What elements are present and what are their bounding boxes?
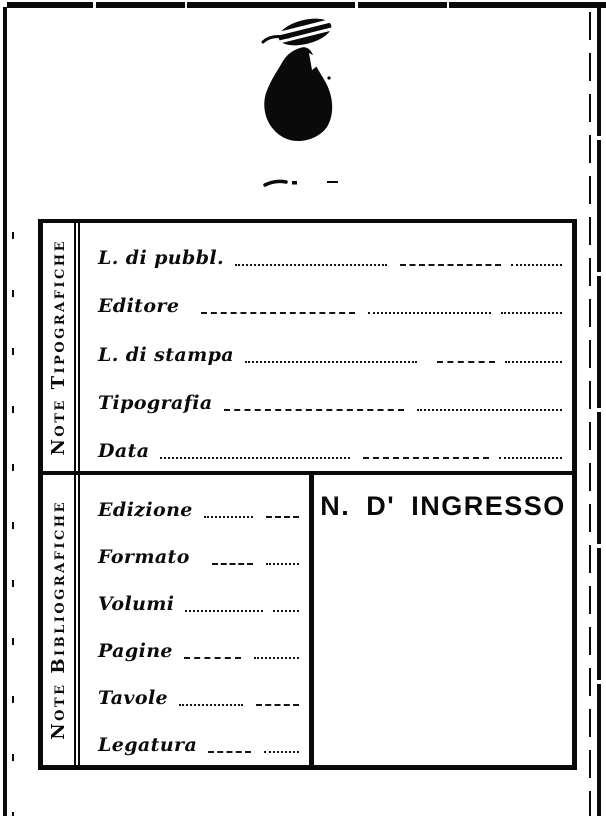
field-row-l-di-pubbl: L. di pubbl. bbox=[98, 236, 562, 269]
field-label: Edizione bbox=[98, 501, 193, 521]
bibliografiche-fields: Edizione Formato Volumi Pagine Tavole Le… bbox=[80, 475, 309, 765]
side-column-bibliografiche: Note Bibliografiche bbox=[43, 475, 80, 765]
page-border-left bbox=[3, 7, 7, 816]
field-row-data: Data bbox=[98, 429, 562, 462]
section-note-tipografiche: Note Tipografiche L. di pubbl. Editore L… bbox=[43, 223, 572, 475]
field-writein-line bbox=[208, 751, 299, 756]
catalog-form-card: Note Tipografiche L. di pubbl. Editore L… bbox=[38, 219, 577, 770]
field-label: L. di stampa bbox=[98, 346, 234, 366]
ingresso-box: N. D' INGRESSO bbox=[314, 475, 572, 765]
ink-blot-stamp-icon bbox=[243, 8, 363, 190]
field-label: Legatura bbox=[98, 736, 197, 756]
field-label: Pagine bbox=[98, 642, 173, 662]
field-writein-line bbox=[201, 312, 562, 317]
field-writein-line bbox=[245, 361, 562, 366]
field-row-edizione: Edizione bbox=[98, 488, 299, 521]
side-label-bibliografiche: Note Bibliografiche bbox=[48, 500, 69, 740]
page-border-right-inner bbox=[589, 12, 591, 816]
field-row-pagine: Pagine bbox=[98, 629, 299, 662]
field-row-l-di-stampa: L. di stampa bbox=[98, 333, 562, 366]
field-writein-line bbox=[185, 610, 299, 615]
field-label: Volumi bbox=[98, 595, 174, 615]
page-border-right bbox=[597, 4, 601, 816]
tipografiche-fields: L. di pubbl. Editore L. di stampa Tipogr… bbox=[80, 223, 572, 471]
field-row-volumi: Volumi bbox=[98, 582, 299, 615]
ingresso-title: N. D' INGRESSO bbox=[320, 491, 565, 521]
field-row-formato: Formato bbox=[98, 535, 299, 568]
field-label: Formato bbox=[98, 548, 190, 568]
field-label: L. di pubbl. bbox=[98, 249, 224, 269]
field-row-legatura: Legatura bbox=[98, 723, 299, 756]
field-row-tavole: Tavole bbox=[98, 676, 299, 709]
section-note-bibliografiche: Note Bibliografiche Edizione Formato Vol… bbox=[43, 475, 572, 765]
field-row-tipografia: Tipografia bbox=[98, 381, 562, 414]
field-writein-line bbox=[184, 657, 299, 662]
field-writein-line bbox=[160, 457, 562, 462]
scanned-library-card: { "card": { "colors": { "ink": "#0a0a0a"… bbox=[0, 0, 606, 816]
side-column-tipografiche: Note Tipografiche bbox=[43, 223, 80, 471]
field-writein-line bbox=[204, 516, 299, 521]
field-label: Data bbox=[98, 442, 149, 462]
field-writein-line bbox=[235, 264, 562, 269]
field-writein-line bbox=[224, 409, 562, 414]
field-label: Tipografia bbox=[98, 394, 213, 414]
page-border-left-inner-dots bbox=[12, 232, 14, 816]
field-label: Editore bbox=[98, 297, 179, 317]
side-label-tipografiche: Note Tipografiche bbox=[48, 239, 69, 456]
field-writein-line bbox=[212, 563, 299, 568]
field-writein-line bbox=[179, 704, 299, 709]
field-row-editore: Editore bbox=[98, 284, 562, 317]
field-label: Tavole bbox=[98, 689, 168, 709]
